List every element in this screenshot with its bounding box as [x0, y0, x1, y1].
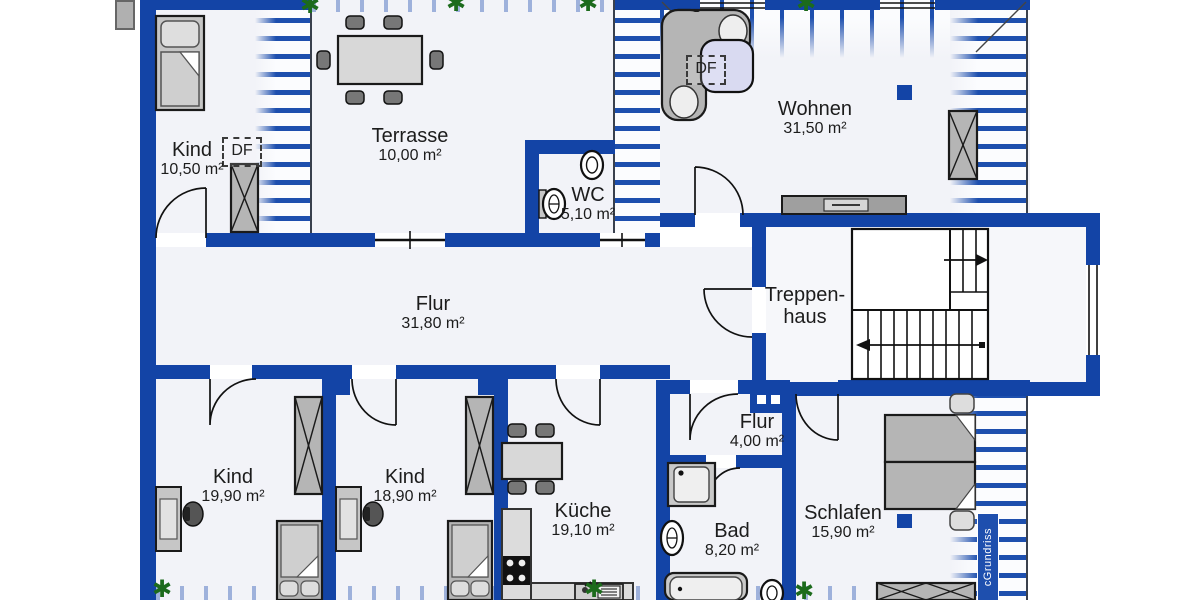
outer-wall-top-3	[765, 0, 880, 10]
outer-wall-top-4	[935, 0, 1030, 10]
room-area: 10,50 m²	[140, 161, 244, 179]
room-label-kind3: Kind 18,90 m²	[350, 466, 460, 506]
room-label-wohnen: Wohnen 31,50 m²	[763, 98, 867, 138]
outer-wall-top-2	[615, 0, 700, 10]
plant-icon: ✱	[300, 0, 320, 18]
plant-icon: ✱	[794, 580, 814, 600]
room-label-treppenhaus: Treppen- haus	[753, 284, 857, 329]
flur-floor-right	[656, 247, 752, 380]
room-label-bad: Bad 8,20 m²	[676, 520, 788, 560]
floor-plan: ✱ ✱ ✱ ✱ ✱ ✱ ✱ DF DF Kind 10,50 m² Terras…	[0, 0, 1200, 600]
wall-kind2-kind3	[322, 365, 336, 600]
plant-icon: ✱	[584, 578, 604, 600]
room-label-wc: WC 5,10 m²	[533, 184, 643, 224]
plant-icon: ✱	[152, 578, 172, 600]
wall-stub	[331, 376, 350, 395]
watermark-ribbon: cGrundriss	[977, 513, 999, 600]
room-name: Kind	[140, 139, 244, 161]
roof-hatch-bottom-edge	[156, 586, 975, 600]
room-label-schlafen: Schlafen 15,90 m²	[788, 502, 898, 542]
room-label-terrasse: Terrasse 10,00 m²	[350, 125, 470, 165]
wc-wall-top	[525, 140, 615, 154]
room-label-flur: Flur 31,80 m²	[381, 293, 485, 333]
watermark-text: cGrundriss	[982, 528, 994, 586]
chimney-marker-schlafen	[897, 514, 912, 528]
window	[1086, 265, 1100, 355]
double-door-marker	[750, 391, 786, 413]
roof-window-fragment	[115, 0, 135, 30]
plant-icon: ✱	[446, 0, 466, 16]
outer-wall-top-1	[140, 0, 312, 10]
schlafen-floor	[796, 393, 975, 600]
df-text: DF	[695, 60, 716, 77]
room-label-kind2: Kind 19,90 m²	[178, 466, 288, 506]
chimney-marker-wohnen	[897, 85, 912, 100]
room-label-kueche: Küche 19,10 m²	[528, 500, 638, 540]
kueche-floor	[508, 379, 656, 600]
outer-wall-left	[140, 0, 156, 600]
wall-kind3-kueche	[494, 365, 508, 600]
df-label-wohnen: DF	[686, 55, 726, 85]
plant-icon: ✱	[796, 0, 816, 16]
room-label-kind1: Kind 10,50 m²	[140, 139, 244, 179]
wall-stub	[478, 374, 497, 395]
room-label-flur2: Flur 4,00 m²	[702, 411, 812, 451]
wall-kueche-bad	[656, 380, 670, 600]
plant-icon: ✱	[578, 0, 598, 16]
